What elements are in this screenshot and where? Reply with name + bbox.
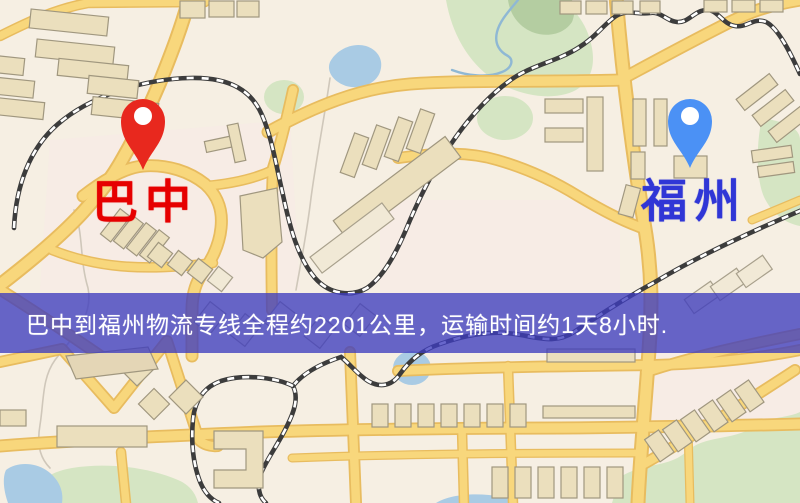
route-info-text: 巴中到福州物流专线全程约2201公里，运输时间约1天8小时. bbox=[0, 306, 668, 340]
destination-pin-hole bbox=[681, 107, 699, 125]
map-canvas bbox=[0, 0, 800, 503]
origin-pin-hole bbox=[134, 107, 152, 125]
map-screenshot: 巴中 福州 巴中到福州物流专线全程约2201公里，运输时间约1天8小时. bbox=[0, 0, 800, 503]
building-row-a bbox=[372, 404, 526, 427]
origin-label: 巴中 bbox=[92, 179, 198, 225]
route-info-banner: 巴中到福州物流专线全程约2201公里，运输时间约1天8小时. bbox=[0, 293, 800, 353]
destination-label: 福州 bbox=[641, 178, 747, 224]
